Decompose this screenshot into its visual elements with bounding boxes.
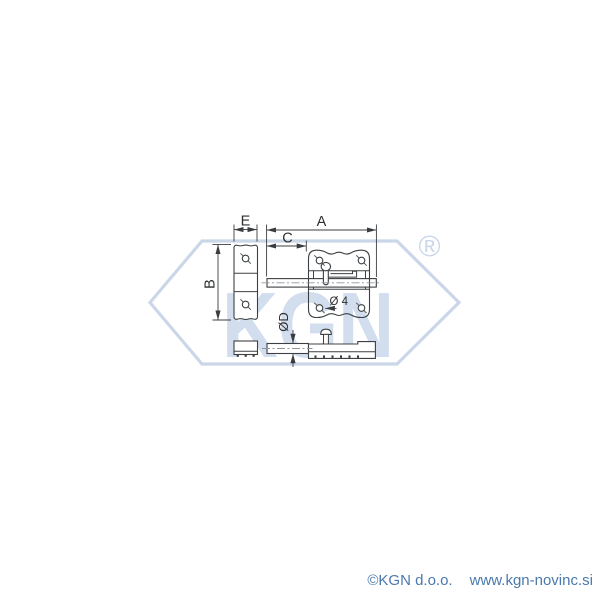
latch-plate-side-view xyxy=(309,342,376,359)
dimension-a-label: A xyxy=(317,214,327,230)
hole-diameter-label: Ø 4 xyxy=(330,296,349,308)
dimension-c-label: C xyxy=(282,231,292,247)
dimension-d-label: ØD xyxy=(276,312,291,332)
keeper-plate-side-view xyxy=(234,341,258,357)
dimension-e: E xyxy=(234,214,257,242)
footer-copyright: ©KGN d.o.o. xyxy=(367,572,452,589)
kgn-watermark-logo: KGN ® xyxy=(150,231,459,378)
dimension-b-label: B xyxy=(203,279,219,289)
footer: ©KGN d.o.o. www.kgn-novinc.si xyxy=(367,572,593,589)
registered-trademark-icon: ® xyxy=(418,231,440,264)
technical-drawing: KGN ® xyxy=(0,0,600,600)
hole-diameter-annotation: Ø 4 xyxy=(325,296,348,309)
technical-drawing-canvas: KGN ® xyxy=(0,0,600,600)
footer-website-link[interactable]: www.kgn-novinc.si xyxy=(470,572,593,589)
keeper-plate-top-view xyxy=(234,245,258,319)
dimension-e-label: E xyxy=(241,214,251,230)
